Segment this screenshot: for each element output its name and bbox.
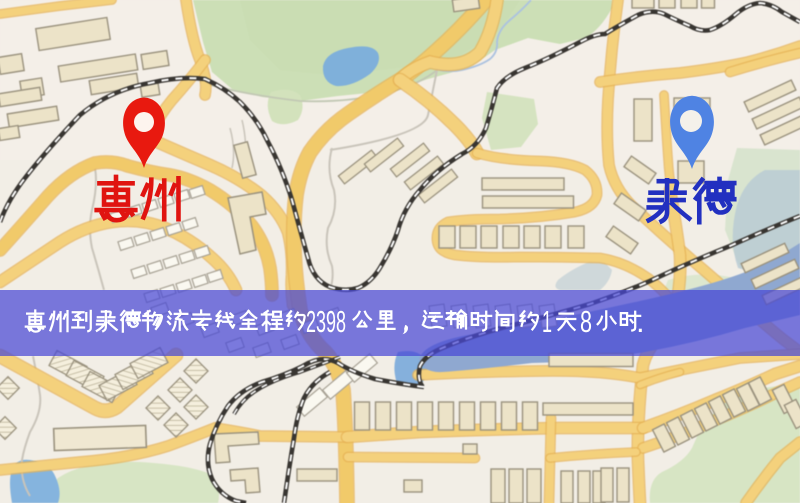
svg-text:8: 8 <box>580 304 592 339</box>
svg-text:.: . <box>636 304 645 339</box>
svg-text:1: 1 <box>542 304 552 339</box>
svg-text:2398: 2398 <box>306 304 346 339</box>
